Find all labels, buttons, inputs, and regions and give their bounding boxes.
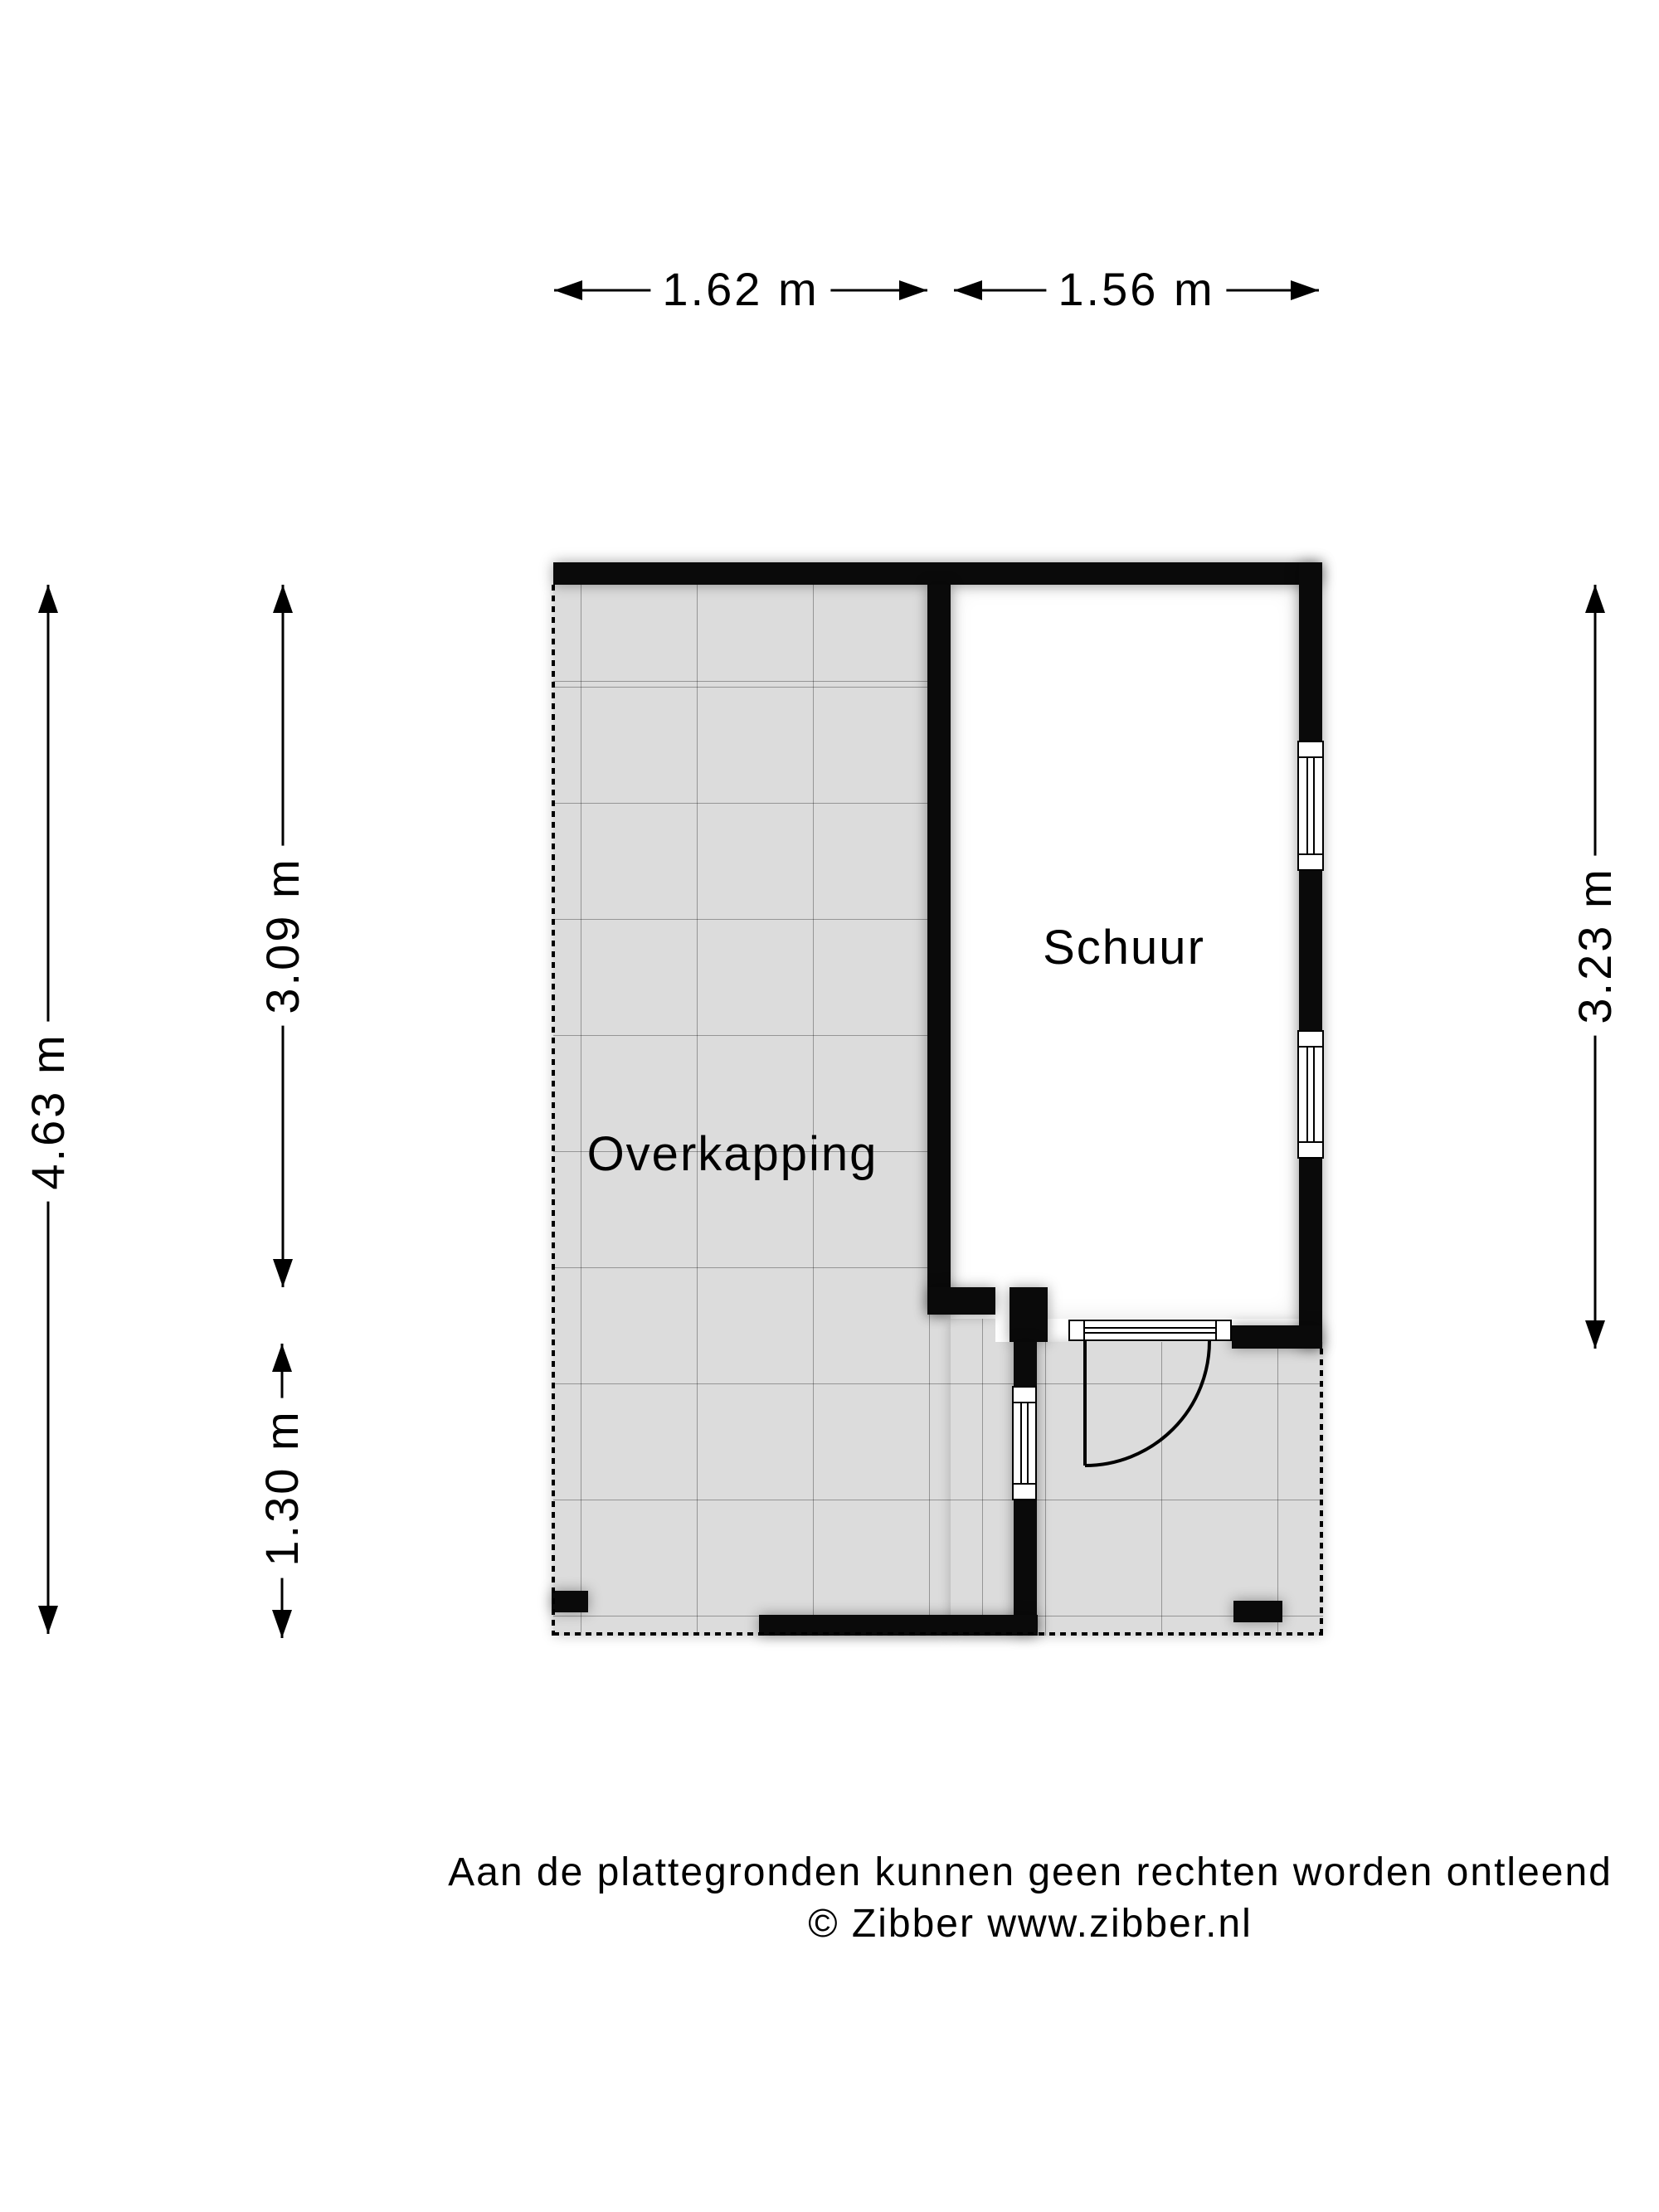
dimension-top-right: 1.56 m [1046,264,1226,315]
floor-plan-page: Schuur Overkapping 1.62 m 1.56 m 4.63 m … [0,0,1659,2212]
room-label-schuur: Schuur [1043,921,1205,975]
dimension-left-upper: 3.09 m [257,845,309,1025]
room-label-overkapping: Overkapping [587,1128,878,1181]
dimension-left-lower: 1.30 m [256,1398,308,1578]
dimension-top-left: 1.62 m [650,264,830,315]
dimension-right: 3.23 m [1569,855,1621,1035]
door-swing-arc [1085,1341,1209,1466]
disclaimer-line2: © Zibber www.zibber.nl [808,1900,1253,1948]
dimension-left-total: 4.63 m [22,1021,74,1201]
disclaimer-line1: Aan de plattegronden kunnen geen rechten… [448,1849,1613,1897]
